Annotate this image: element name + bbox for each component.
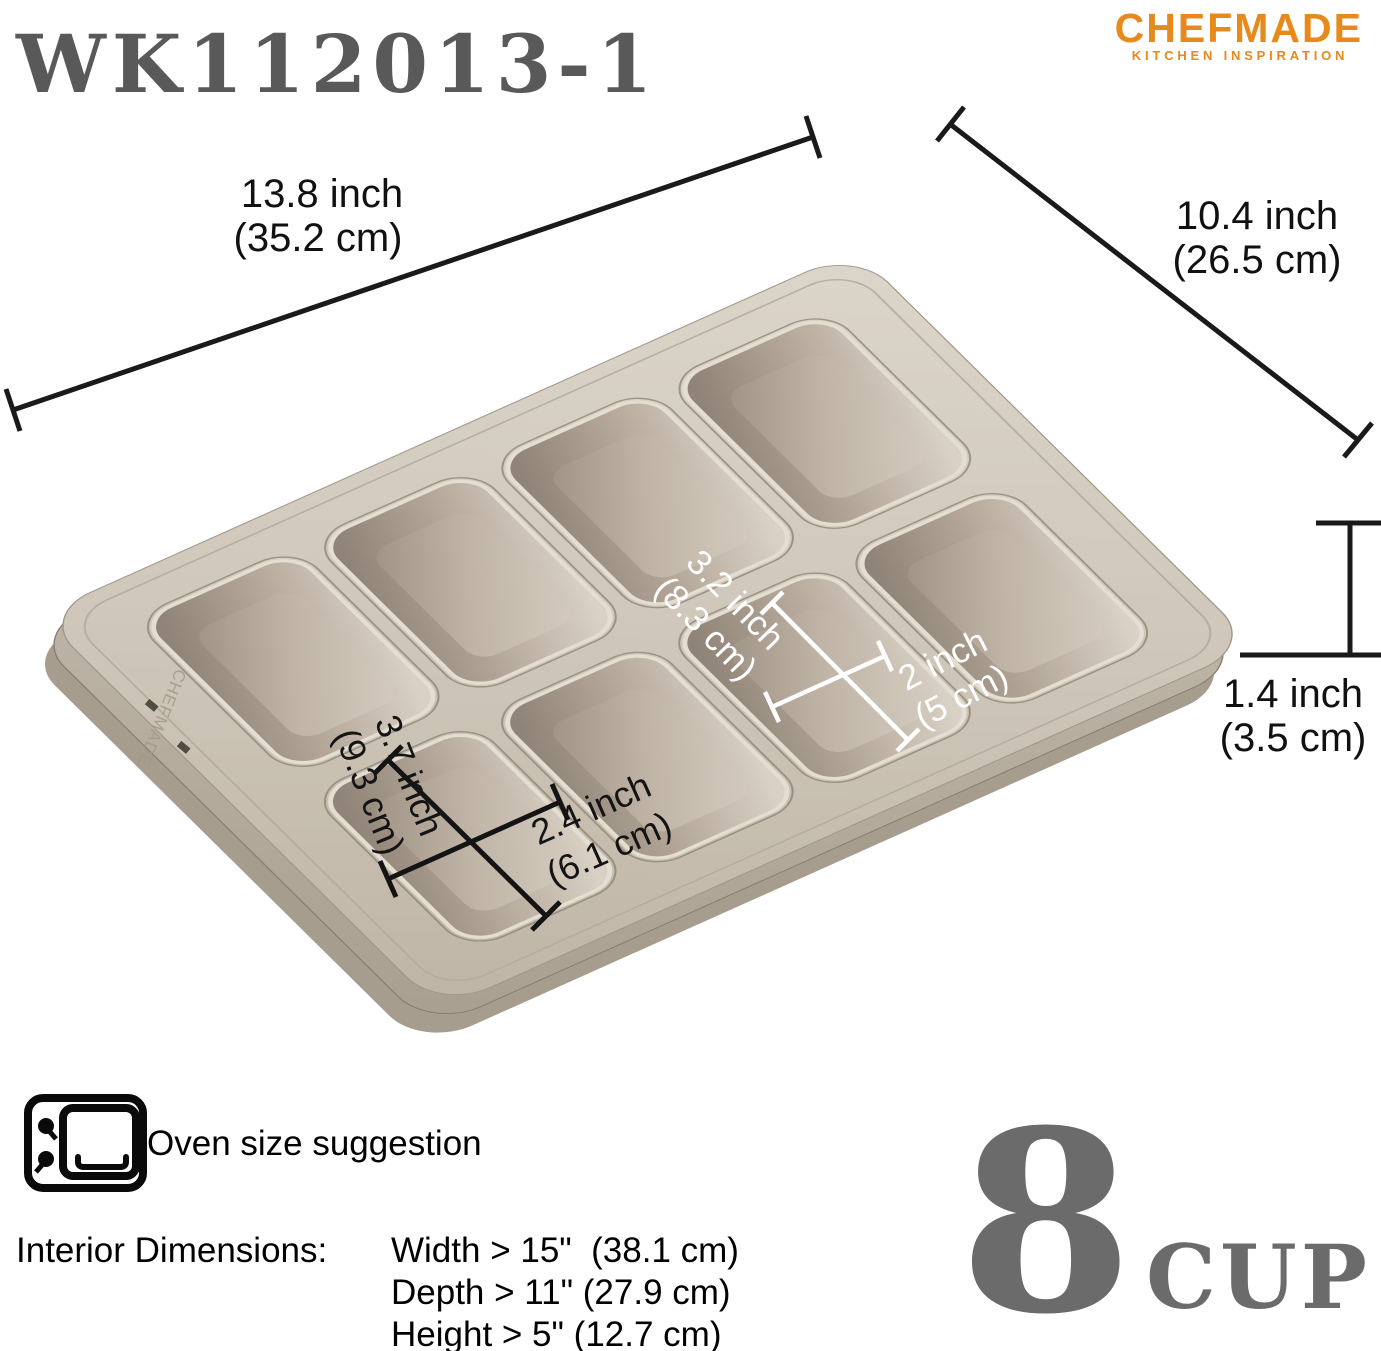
dim-overall-width-inch: 10.4 inch	[1176, 194, 1338, 238]
loaf-pan: CHEFMADE	[22, 250, 1255, 1048]
dim-overall-length-inch: 13.8 inch	[241, 172, 403, 216]
capacity-unit: CUP	[1146, 1225, 1371, 1329]
interior-width-value: Width > 15" (38.1 cm)	[391, 1231, 739, 1270]
oven-icon	[28, 1098, 143, 1188]
dim-overall-width-cm: (26.5 cm)	[1173, 238, 1342, 282]
dim-pan-height-cm: (3.5 cm)	[1220, 716, 1367, 760]
capacity-number: 8	[959, 1075, 1133, 1351]
oven-knob-tail	[50, 1132, 56, 1139]
oven-door-handle	[78, 1157, 126, 1167]
dim-pan-height	[1240, 523, 1381, 655]
interior-height-value: Height > 5" (12.7 cm)	[391, 1315, 721, 1351]
product-code: WK112013-1	[15, 17, 658, 111]
dim-overall-length-cm: (35.2 cm)	[234, 216, 403, 260]
diagram-canvas: WK112013-1 CHEFMADE KITCHEN INSPIRATION …	[0, 0, 1381, 1351]
oven-suggestion-title: Oven size suggestion	[147, 1124, 482, 1163]
brand-logo: CHEFMADE	[1115, 5, 1363, 51]
brand-tagline: KITCHEN INSPIRATION	[1132, 48, 1348, 63]
oven-knob-tail	[36, 1165, 42, 1172]
product-diagram: WK112013-1 CHEFMADE KITCHEN INSPIRATION …	[0, 0, 1381, 1351]
dim-tick	[1344, 423, 1372, 457]
dim-tick	[937, 107, 964, 141]
dim-line	[950, 124, 1358, 440]
interior-depth-value: Depth > 11" (27.9 cm)	[391, 1273, 731, 1312]
interior-dimensions-label: Interior Dimensions:	[16, 1231, 327, 1270]
dim-pan-height-inch: 1.4 inch	[1223, 672, 1363, 716]
